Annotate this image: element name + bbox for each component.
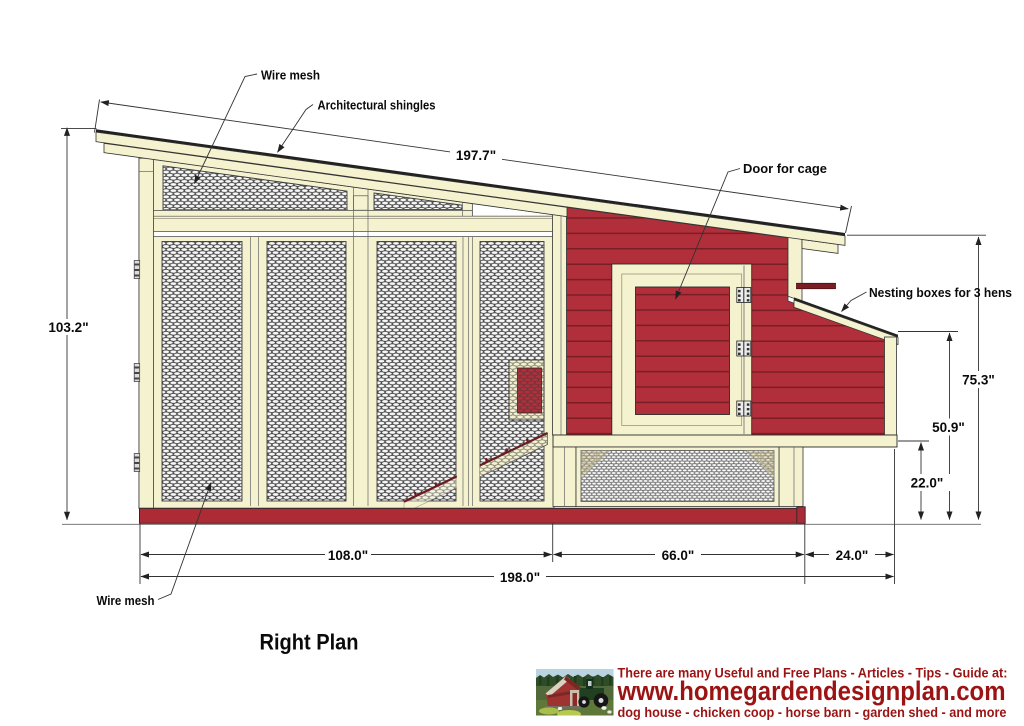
svg-text:Right Plan: Right Plan (260, 630, 359, 655)
svg-text:197.7": 197.7" (456, 148, 496, 163)
svg-text:Nesting boxes for 3 hens: Nesting boxes for 3 hens (869, 285, 1012, 300)
svg-text:Wire mesh: Wire mesh (261, 68, 320, 83)
svg-text:Architectural shingles: Architectural shingles (318, 98, 436, 113)
svg-text:24.0": 24.0" (836, 548, 869, 563)
svg-text:108.0": 108.0" (328, 548, 368, 563)
svg-text:Wire mesh: Wire mesh (97, 593, 155, 608)
svg-text:198.0": 198.0" (500, 570, 540, 585)
svg-text:22.0": 22.0" (911, 476, 944, 491)
svg-text:www.homegardendesignplan.com: www.homegardendesignplan.com (617, 676, 1006, 706)
svg-text:dog house - chicken coop - hor: dog house - chicken coop - horse barn - … (618, 704, 1007, 720)
svg-text:103.2": 103.2" (48, 320, 88, 335)
svg-text:50.9": 50.9" (932, 420, 965, 435)
svg-text:66.0": 66.0" (662, 548, 695, 563)
svg-text:Door for cage: Door for cage (743, 161, 827, 176)
svg-text:75.3": 75.3" (962, 373, 995, 388)
